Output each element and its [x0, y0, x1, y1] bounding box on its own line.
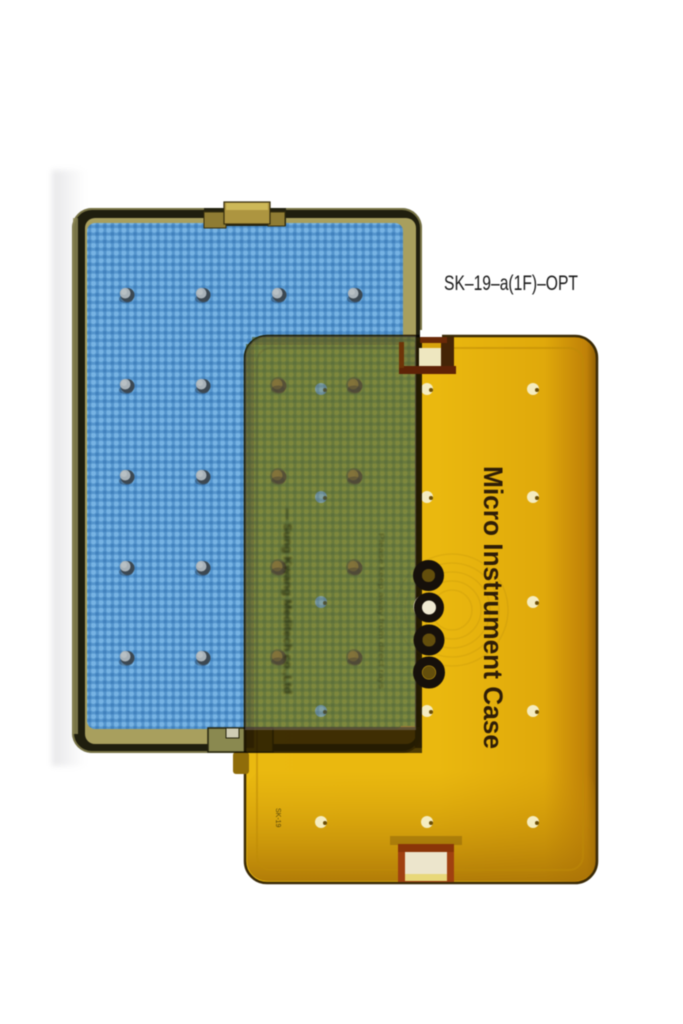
- svg-text:— Sung Kwang Meditech co.,Ltd: — Sung Kwang Meditech co.,Ltd: [281, 508, 293, 694]
- svg-text:SK-19: SK-19: [274, 808, 281, 828]
- svg-text:Micro Instrument Case: Micro Instrument Case: [478, 466, 508, 749]
- svg-text:SK–19–a(1F)–OPT: SK–19–a(1F)–OPT: [444, 272, 578, 295]
- svg-text:Please keep away from direct r: Please keep away from direct rays: [377, 533, 384, 690]
